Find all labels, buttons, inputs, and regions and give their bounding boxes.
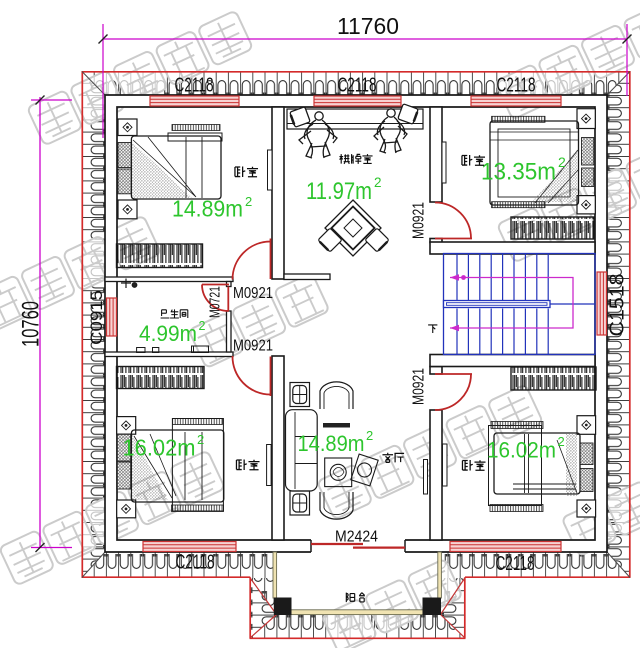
svg-text:M0921: M0921 [411, 368, 428, 405]
svg-text:M0921: M0921 [233, 285, 273, 302]
svg-text:M2424: M2424 [335, 529, 378, 546]
svg-text:C2118: C2118 [175, 75, 214, 97]
svg-text:C1518: C1518 [607, 274, 629, 337]
svg-text:C2118: C2118 [338, 75, 377, 97]
svg-text:13.35m: 13.35m [481, 159, 556, 186]
svg-text:2: 2 [197, 432, 204, 447]
svg-text:14.89m: 14.89m [172, 196, 243, 222]
svg-text:M0921: M0921 [411, 202, 428, 239]
svg-text:16.02m: 16.02m [123, 435, 196, 461]
svg-text:M0721: M0721 [207, 286, 224, 318]
svg-text:2: 2 [558, 154, 566, 170]
svg-text:C0915: C0915 [87, 290, 106, 345]
svg-text:10760: 10760 [18, 301, 45, 347]
svg-text:16.02m: 16.02m [487, 438, 556, 463]
svg-text:C2118: C2118 [497, 75, 536, 97]
svg-text:M0921: M0921 [233, 338, 273, 355]
svg-text:2: 2 [245, 194, 252, 209]
svg-text:4.99m: 4.99m [139, 321, 197, 346]
svg-text:2: 2 [366, 428, 373, 443]
svg-text:11.97m: 11.97m [306, 178, 372, 205]
svg-text:14.89m: 14.89m [298, 431, 365, 456]
svg-text:C2118: C2118 [176, 552, 215, 574]
svg-text:C2118: C2118 [496, 553, 535, 575]
svg-text:2: 2 [558, 434, 565, 449]
svg-text:2: 2 [374, 175, 382, 190]
svg-text:11760: 11760 [337, 13, 399, 39]
svg-text:2: 2 [199, 319, 206, 333]
